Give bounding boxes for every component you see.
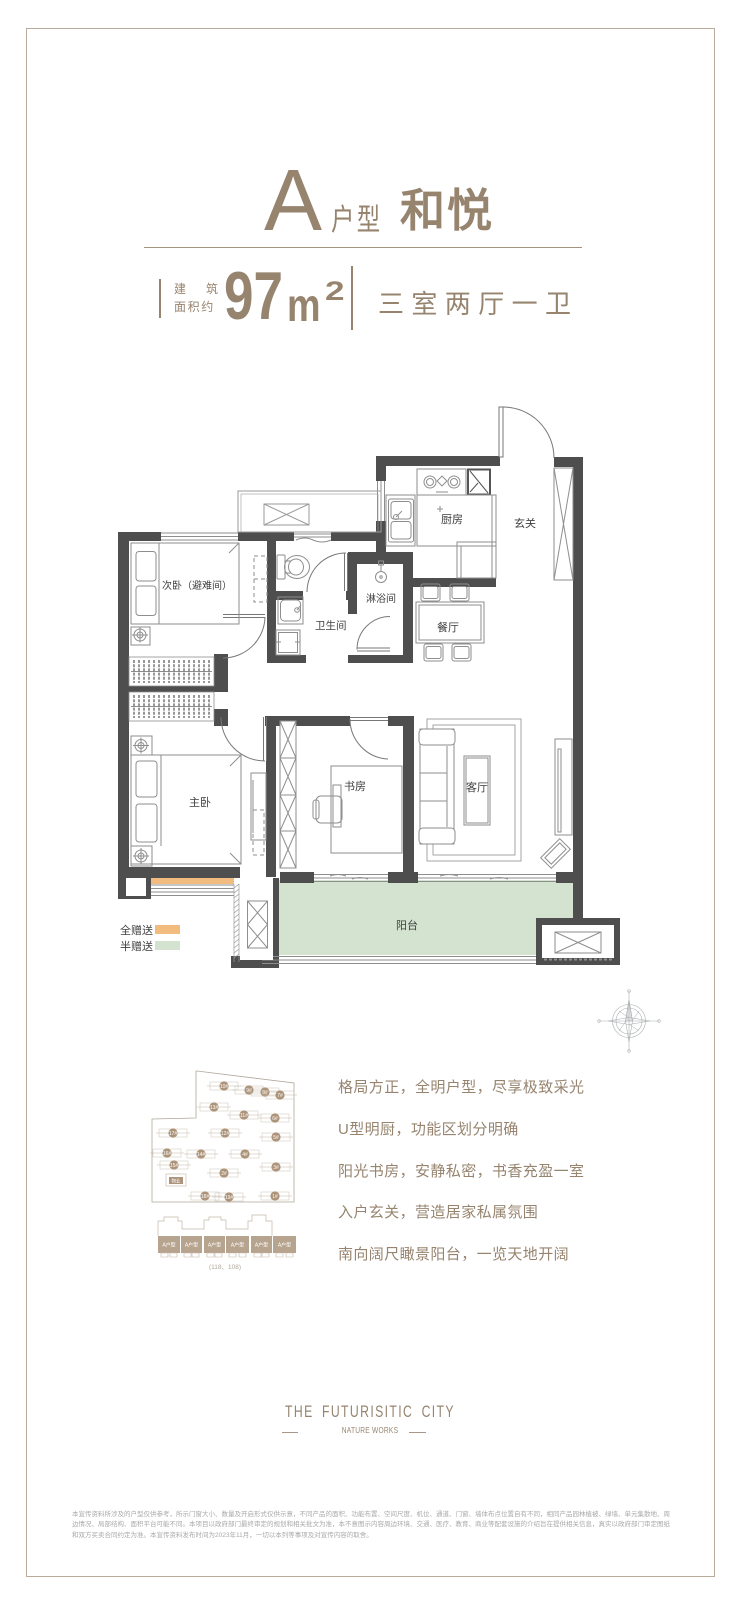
svg-text:3#: 3# [273, 1165, 279, 1171]
svg-text:2#: 2# [221, 1171, 227, 1177]
svg-text:7#: 7# [277, 1093, 283, 1099]
svg-text:4#: 4# [242, 1152, 248, 1158]
svg-text:主卧: 主卧 [189, 796, 211, 809]
svg-text:13#: 13# [210, 1105, 219, 1111]
svg-text:6#: 6# [272, 1116, 278, 1122]
svg-text:厨房: 厨房 [441, 513, 463, 526]
svg-text:物业: 物业 [172, 1178, 181, 1185]
svg-text:A户型: A户型 [255, 1242, 268, 1249]
svg-text:客厅: 客厅 [466, 780, 488, 794]
svg-text:A户型: A户型 [231, 1242, 244, 1249]
svg-text:淋浴间: 淋浴间 [366, 592, 396, 605]
svg-text:16#: 16# [163, 1151, 172, 1157]
svg-text:5#: 5# [273, 1135, 279, 1141]
svg-text:A户型: A户型 [185, 1242, 198, 1249]
svg-text:餐厅: 餐厅 [437, 620, 459, 634]
svg-text:12#: 12# [221, 1131, 230, 1137]
svg-text:A户型: A户型 [162, 1242, 175, 1249]
svg-text:11#: 11# [240, 1113, 248, 1119]
svg-text:10#: 10# [220, 1084, 229, 1090]
svg-text:15#: 15# [170, 1163, 179, 1169]
svg-text:A户型: A户型 [278, 1242, 291, 1249]
svg-text:19#: 19# [225, 1195, 234, 1201]
svg-text:1#: 1# [272, 1194, 278, 1200]
svg-text:(118、108): (118、108) [209, 1264, 241, 1271]
svg-text:阳台: 阳台 [396, 918, 418, 932]
svg-text:14#: 14# [197, 1152, 206, 1158]
svg-text:全赠送: 全赠送 [120, 923, 153, 937]
svg-text:17#: 17# [169, 1131, 178, 1137]
svg-text:次卧（避难间）: 次卧（避难间） [162, 579, 232, 592]
svg-text:18#: 18# [201, 1194, 210, 1200]
svg-text:书房: 书房 [344, 780, 366, 793]
svg-text:卫生间: 卫生间 [315, 619, 347, 632]
svg-text:玄关: 玄关 [514, 516, 536, 530]
svg-text:半赠送: 半赠送 [120, 939, 153, 953]
svg-text:A户型: A户型 [208, 1242, 221, 1249]
